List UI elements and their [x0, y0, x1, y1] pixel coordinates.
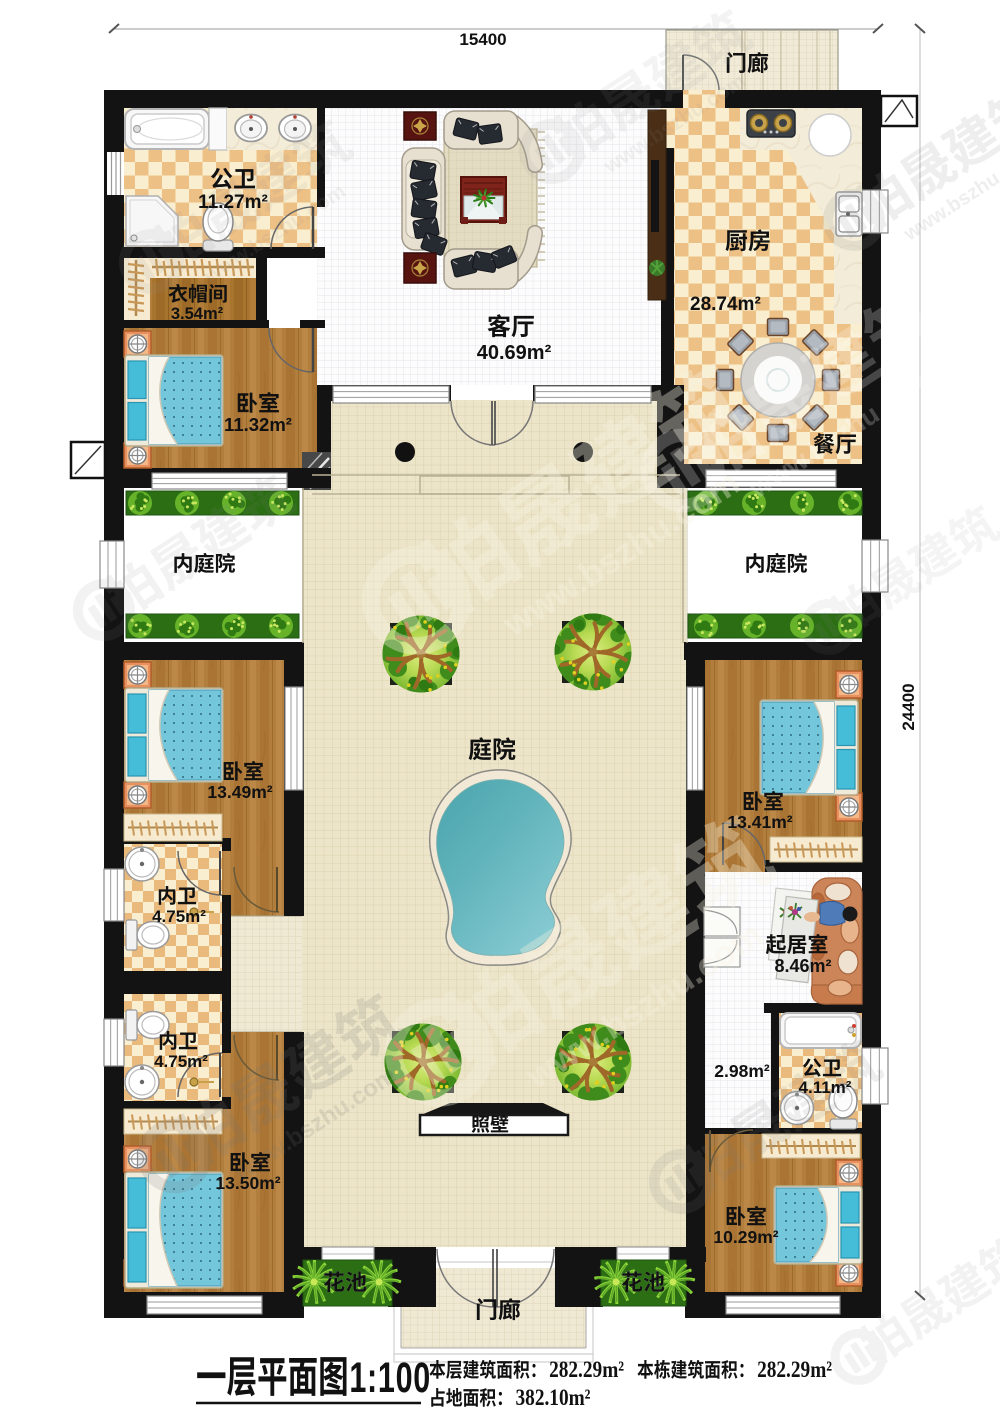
svg-text:13.50m²: 13.50m² [215, 1173, 280, 1193]
svg-text:282.29m²: 282.29m² [549, 1356, 624, 1382]
svg-text:28.74m²: 28.74m² [690, 294, 761, 315]
svg-text:10.29m²: 10.29m² [713, 1227, 778, 1247]
svg-text:4.11m²: 4.11m² [799, 1078, 852, 1097]
svg-text:11.27m²: 11.27m² [198, 192, 268, 213]
svg-text:40.69m²: 40.69m² [477, 342, 552, 364]
svg-text:13.41m²: 13.41m² [727, 812, 792, 832]
svg-text:382.10m²: 382.10m² [516, 1384, 591, 1410]
svg-text:24400: 24400 [899, 683, 918, 730]
svg-text:15400: 15400 [459, 30, 506, 49]
svg-text:13.49m²: 13.49m² [207, 782, 272, 802]
svg-text:4.75m²: 4.75m² [152, 907, 206, 926]
svg-text:11.32m²: 11.32m² [224, 414, 292, 435]
svg-text:282.29m²: 282.29m² [757, 1356, 832, 1382]
svg-text:4.75m²: 4.75m² [154, 1052, 208, 1071]
svg-text:2.98m²: 2.98m² [714, 1061, 770, 1081]
svg-text:1:100: 1:100 [349, 1353, 431, 1401]
svg-text:3.54m²: 3.54m² [171, 305, 224, 323]
svg-text:8.46m²: 8.46m² [774, 956, 831, 976]
